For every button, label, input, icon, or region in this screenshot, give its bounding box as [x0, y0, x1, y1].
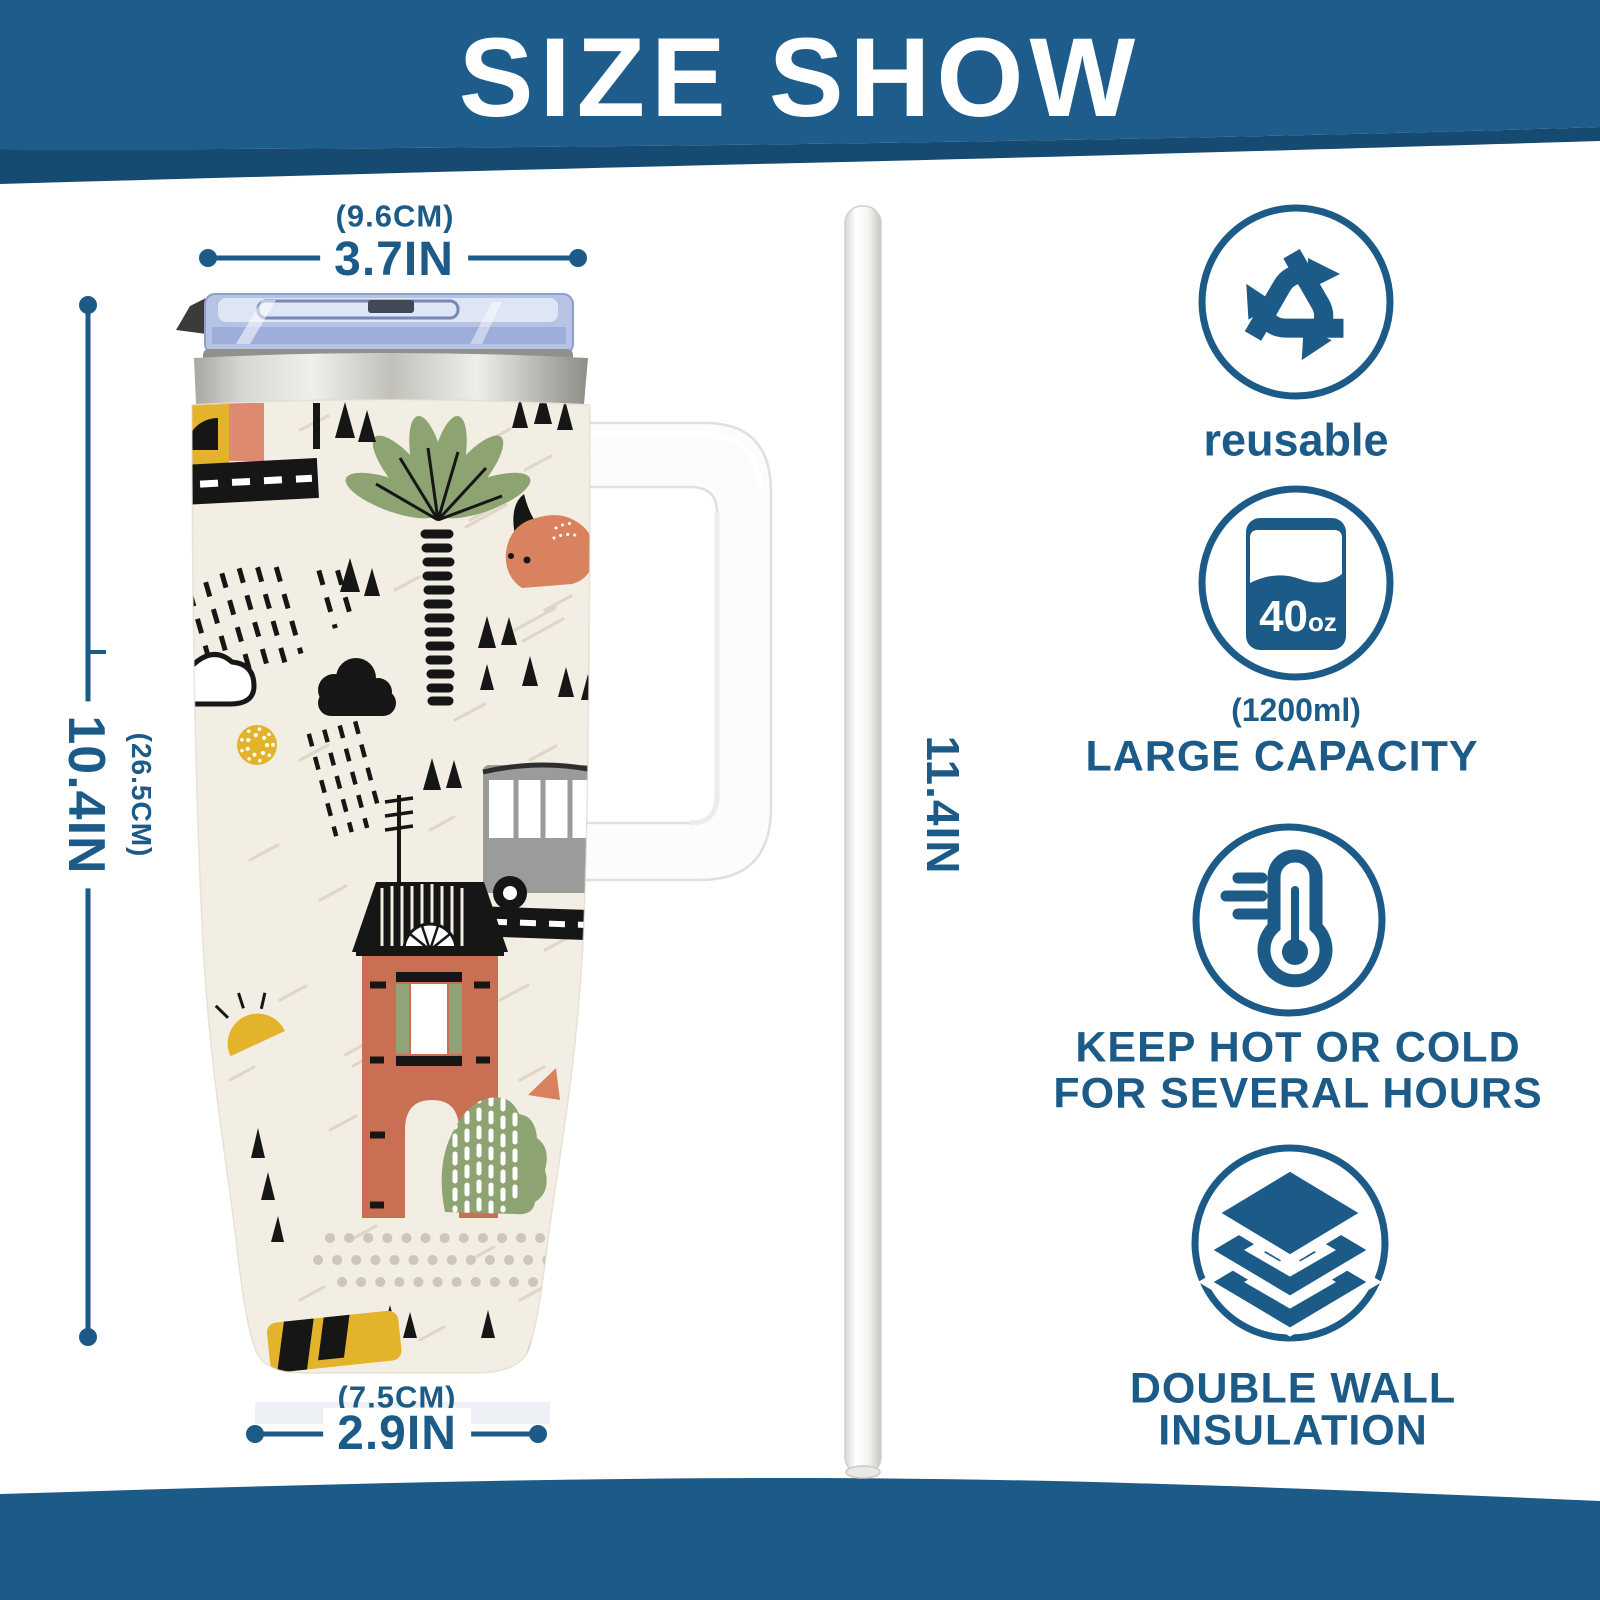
capacity-label: LARGE CAPACITY: [1085, 736, 1478, 779]
footer-banner: [0, 1478, 1600, 1600]
scene-graphic: [0, 0, 1600, 1600]
height-cm-label: (26.5CM): [127, 733, 155, 858]
bottom-width-in-label: 2.9IN: [323, 1408, 471, 1460]
page-title: SIZE SHOW: [459, 22, 1141, 134]
tumbler-body-pattern: [159, 390, 620, 1390]
capacity-value: 40oz: [1259, 592, 1337, 642]
double-wall-label-line1: DOUBLE WALL: [1130, 1368, 1456, 1411]
tumbler-graphic: [159, 294, 771, 1390]
size-show-infographic: SIZE SHOW (9.6CM) 3.7IN 10.4IN (26.5CM) …: [0, 0, 1600, 1600]
straw-graphic: [845, 206, 881, 1478]
top-width-in-label: 3.7IN: [320, 234, 468, 286]
insulated-label-line2: FOR SEVERAL HOURS: [1053, 1073, 1542, 1116]
thermometer-icon: [1196, 827, 1382, 1013]
height-in-label: 10.4IN: [58, 701, 114, 888]
capacity-unit: oz: [1308, 607, 1337, 638]
layers-icon: [1195, 1148, 1385, 1338]
double-wall-label-line2: INSULATION: [1158, 1410, 1428, 1453]
steel-band: [194, 353, 588, 404]
straw-length-label: 11.4IN: [920, 736, 966, 875]
capacity-metric-label: (1200ml): [1231, 694, 1361, 726]
feature-reusable-label: reusable: [1203, 418, 1388, 463]
top-width-cm-label: (9.6CM): [336, 201, 455, 232]
tumbler-lid: [176, 294, 573, 362]
capacity-icon: [1202, 489, 1390, 677]
recycle-icon: [1202, 208, 1390, 396]
insulated-label-line1: KEEP HOT OR COLD: [1075, 1027, 1520, 1070]
capacity-number: 40: [1259, 592, 1308, 642]
